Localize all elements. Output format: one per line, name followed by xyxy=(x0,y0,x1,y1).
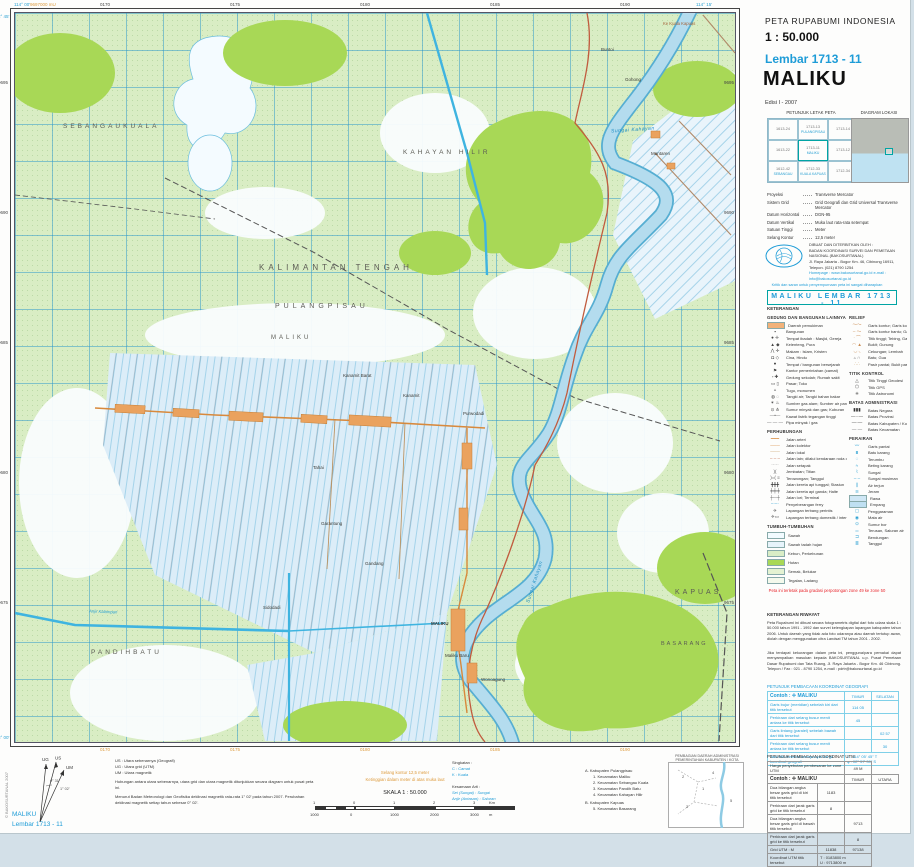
place-label: Kanamit xyxy=(403,393,420,398)
scalebar-segment xyxy=(355,806,395,810)
legend-symbol: ⬠ xyxy=(849,384,865,390)
legend-label: Jeram xyxy=(868,489,879,494)
legend-symbol: ⌇ xyxy=(849,469,865,475)
projection-label: Satuan Tinggi xyxy=(767,227,803,232)
table-row: Koordinat UTM titik tersebutT : 0183800 … xyxy=(768,854,899,867)
region-label: SEBANGAUKUALA xyxy=(63,123,159,130)
legend-symbol: ━━━ xyxy=(767,436,783,442)
legend-item: – 〜Garis kontur bantu; Garis depresi xyxy=(849,329,907,336)
legend-symbol: ⚑ xyxy=(767,368,783,374)
legend-symbol: ▪ xyxy=(767,329,783,335)
edge-coordinate: 0185 xyxy=(490,2,500,7)
edge-coordinate: 2° 45' xyxy=(0,14,9,19)
legend-label: Jalan lokal xyxy=(786,450,805,455)
legend-label: Terowongan; Tanggul xyxy=(786,476,824,481)
index-cell-number: 1613-24 xyxy=(776,127,790,132)
sheet-number: Lembar 1713 - 11 xyxy=(765,52,862,66)
abbreviations: Singkatan : C : CamatK : Kuala Kesamaan … xyxy=(452,760,496,802)
legend-label: Sumber gas alam; Sumber air panas xyxy=(786,401,847,406)
legend-label: Kebun, Perkebunan xyxy=(788,551,823,556)
legend-symbol: ◌ xyxy=(849,456,865,462)
place-label: MALIKU xyxy=(431,621,449,626)
legend-symbol: ≈ xyxy=(849,463,865,469)
place-label: Maliku Baru xyxy=(445,653,469,658)
projection-row: Sistem GridGrid Geografi dan Grid Univer… xyxy=(767,200,903,210)
legend-label: Pasar; Toko xyxy=(786,381,807,386)
coord-result-2: U : 9713800 m xyxy=(820,860,869,865)
legend-item: Kebun, Perkebunan xyxy=(767,549,847,558)
legend-item: Hutan xyxy=(767,558,847,567)
legend-symbol: ⊙ xyxy=(849,521,865,527)
legend-symbol: ≋ xyxy=(849,489,865,495)
table-cell: 8 xyxy=(845,833,872,846)
feedback-note: Kritik dan saran untuk penyempurnaan pet… xyxy=(755,283,899,287)
legend-symbol: — — xyxy=(849,427,865,433)
legend-label: Titik tinggi; Tebing, Gawir xyxy=(868,336,907,341)
place-label: Garantung xyxy=(321,521,342,526)
legend-left-column: GEDUNG DAN BANGUNAN LAINNYADaerah pemuki… xyxy=(767,312,847,585)
scalebar-segment xyxy=(395,806,435,810)
index-cell-name: SEBANGAU xyxy=(774,172,793,176)
publisher-block: DIBUAT DAN DITERBITKAN OLEH : BADAN KOOR… xyxy=(809,242,905,282)
region-label: BASARANG xyxy=(661,641,708,647)
projection-row: Datum HorizontalDGN-95 xyxy=(767,212,903,217)
projection-label: Datum Horizontal xyxy=(767,212,803,217)
map-area: SEBANGAUKUALAKAHAYAN HILIRKALIMANTAN TEN… xyxy=(14,12,736,743)
legend-title: KETERANGAN xyxy=(767,306,799,311)
table-cell: 45 xyxy=(845,714,872,727)
legend-label: Jalan kolektor xyxy=(786,443,811,448)
legend-symbol: – – xyxy=(849,476,865,482)
decl-angle2: 1° 02' xyxy=(60,787,70,791)
legend-item: △Titik Tinggi Geodesi xyxy=(849,378,907,385)
edge-coordinate: 0175 xyxy=(230,2,240,7)
table-cell: SELATAN xyxy=(872,692,899,701)
legend-label: Sawah tadah hujan xyxy=(788,542,822,547)
table-row: Contoh : ✛ MALIKUTIMURSELATAN xyxy=(768,692,899,701)
table-cell xyxy=(872,714,899,727)
legend-label: Batas Kabupaten / Kota xyxy=(868,421,907,426)
map-neatline: SEBANGAUKUALAKAHAYAN HILIRKALIMANTAN TEN… xyxy=(10,8,740,747)
road-label: Ke Kuala Kapuas xyxy=(663,21,695,26)
region-label: KAHAYAN HILIR xyxy=(403,149,491,156)
corner-sheet-id: MALIKU Lembar 1713 - 11 xyxy=(12,810,63,830)
table-row: Garis lintang (paralel) sebelah bawah da… xyxy=(768,727,899,740)
legend-label: Bendungan xyxy=(868,535,888,540)
projection-row: Satuan TinggiMeter xyxy=(767,227,903,232)
legend-label: Penggaraman xyxy=(868,509,893,514)
legend-label: Tugu, monumen xyxy=(786,388,815,393)
bakosurtanal-logo xyxy=(765,244,803,268)
scalebar-label: 2 xyxy=(433,800,435,805)
legend-symbol: ┼─┼ xyxy=(767,495,783,501)
declination-notes: US : Utara sebenarnya (Geografi) UG : Ut… xyxy=(115,758,315,806)
index-map-grid: 1613-241713-13PULANGPISAU1713-141613-221… xyxy=(767,118,859,183)
legend-label: Tangki air; Tangki bahan bakar xyxy=(786,394,840,399)
legend-symbol xyxy=(767,577,785,584)
decl-label-ug: UG xyxy=(42,757,49,762)
legend-symbol: ╋╋╋ xyxy=(767,482,783,488)
history-p1: Peta Rupabumi ini dibuat secara fotogram… xyxy=(767,620,901,642)
index-cell: 1713-13PULANGPISAU xyxy=(798,119,828,140)
legend-label: Sungai xyxy=(868,470,880,475)
legend-label: Batu; Gua xyxy=(868,355,886,360)
place-label: Buntoi xyxy=(601,47,614,52)
edge-coordinate: 9695 xyxy=(0,80,8,85)
legend-label: Jembatan; Titian xyxy=(786,469,815,474)
projection-label: Selang Kontur xyxy=(767,235,803,240)
legend-item: ⊙ ⋔Sumur minyak dan gas; Kuburan xyxy=(767,407,847,414)
dotted-leader xyxy=(803,192,812,196)
legend-section-title: TITIK KONTROL xyxy=(849,371,907,376)
legend-label: Terusan, Saluran air xyxy=(868,528,904,533)
legend-symbol: ● xyxy=(767,361,783,367)
legend-label: Tempat / bangunan bersejarah xyxy=(786,362,840,367)
legend-symbol xyxy=(767,559,785,566)
legend-item: ✶ ♨Sumber gas alam; Sumber air panas xyxy=(767,400,847,407)
legend-symbol xyxy=(849,502,867,509)
legend-label: Pipa minyak / gas xyxy=(786,420,818,425)
table-cell: TIMUR xyxy=(845,692,872,701)
table-cell: T : 0183800 mU : 9713800 m xyxy=(818,854,872,867)
edition: Edisi I - 2007 xyxy=(765,100,797,106)
legend-item: Sawah xyxy=(767,531,847,540)
legend-symbol: ⊐ xyxy=(849,534,865,540)
table-cell: Perkiraan dari jarak garis grid ke titik… xyxy=(768,833,818,846)
legend-item: —•—Kawat listrik tegangan tinggi xyxy=(767,413,847,420)
dotted-leader xyxy=(803,212,812,216)
legend-label: Kawat listrik tegangan tinggi xyxy=(786,414,836,419)
bottom-margin: UG US UM 0° 31' 1° 02' US : Utara sebena… xyxy=(0,748,910,833)
legend-label: Rawa xyxy=(870,496,880,501)
legend-section-title: TUMBUH-TUMBUHAN xyxy=(767,524,847,529)
index-cell-number: 1713-12 xyxy=(836,148,850,153)
scale-bar: 10123Km10000100020003000m xyxy=(305,800,505,820)
edge-coordinate: 9690 xyxy=(724,210,734,215)
scalebar-segment xyxy=(435,806,475,810)
index-cell: 1612-42SEBANGAU xyxy=(768,161,798,182)
projection-value: Grid Geografi dan Grid Universal Transve… xyxy=(815,200,903,210)
legend-section-title: RELIEF xyxy=(849,315,907,320)
table-cell: Grid UTM : M xyxy=(768,846,818,854)
legend-item: · ⌒Titik tinggi; Tebing, Gawir xyxy=(849,335,907,342)
legend-label: Jalan lori; Terminal xyxy=(786,495,819,500)
legend-right-column: RELIEF〜〜Garis kontur; Garis kontur indek… xyxy=(849,312,907,547)
legend-symbol: ◡ ◟ xyxy=(849,348,865,354)
legend-item: ═Terusan, Saluran air xyxy=(849,528,907,535)
index-cell-name: KUALA KAPUAS xyxy=(800,172,826,176)
legend-item: Semak, Belukar xyxy=(767,567,847,576)
legend-label: Titik GPS xyxy=(868,385,885,390)
projection-value: Meter xyxy=(815,227,903,232)
index-cell-name: PULANGPISAU xyxy=(801,130,825,134)
legend-symbol: ─── xyxy=(767,443,783,449)
legend-symbol: ✶ ♨ xyxy=(767,400,783,406)
decl-angle1: 0° 31' xyxy=(50,779,60,783)
scalebar-label: 1 xyxy=(393,800,395,805)
legend-item: ● ✛Tempat ibadah : Masjid, Gereja xyxy=(767,335,847,342)
legend-symbol: ▵ xyxy=(767,387,783,393)
legend-symbol: –·–· xyxy=(767,501,783,507)
legend-label: Makam : Islam, Kristen xyxy=(786,349,827,354)
legend-item: — — —Pipa minyak / gas xyxy=(767,420,847,427)
dotted-leader xyxy=(803,220,812,224)
decl-label-us: US xyxy=(55,756,61,761)
projection-label: Proyeksi xyxy=(767,192,803,197)
legend-item: ≣Tanggul xyxy=(849,541,907,548)
scalebar-segment xyxy=(475,806,515,810)
legend-symbol: ═ xyxy=(849,528,865,534)
legend-label: Jalan kereta api tunggal; Stasiun xyxy=(786,482,844,487)
scalebar-label: 3000 xyxy=(470,812,479,817)
legend-symbol: ─── xyxy=(767,449,783,455)
legend-symbol: ⋀ ✛ xyxy=(767,348,783,354)
equiv-item: Anjir (Antasan) : Saluran xyxy=(452,796,496,802)
legend-label: Kelenteng, Pura xyxy=(786,342,815,347)
canal-label: Anjir Kalampan xyxy=(89,609,118,615)
legend-item: Tegalan, Ladang xyxy=(767,576,847,585)
legend-symbol: ✈ xyxy=(767,508,783,514)
dotted-leader xyxy=(803,227,812,231)
legend-symbol: ◍ ◌ xyxy=(767,394,783,400)
legend-symbol: ◉ xyxy=(849,515,865,521)
legend-item: ◍ ◌Tangki air; Tangki bahan bakar xyxy=(767,394,847,401)
legend-item: ▫ ✚Gedung sekolah; Rumah sakit xyxy=(767,374,847,381)
scalebar-label: 0 xyxy=(350,812,352,817)
scalebar-unit: m xyxy=(489,812,492,817)
projection-value: 12,5 meter xyxy=(815,235,903,240)
legend-item: ✈▭Lapangan terbang domestik / internasio… xyxy=(767,514,847,521)
legend-label: Jalan arteri xyxy=(786,437,806,442)
legend-item: — —Batas Kecamatan xyxy=(849,427,907,434)
legend-label: Sungai musiman xyxy=(868,476,898,481)
region-label: KAPUAS xyxy=(675,589,721,596)
edge-coordinate: 114° 15' xyxy=(696,2,712,7)
region-label: KALIMANTAN TENGAH xyxy=(259,263,413,272)
legend-label: Lapangan terbang perintis xyxy=(786,508,832,513)
scalebar-label: 0 xyxy=(353,800,355,805)
legend-label: Titik Astronomi xyxy=(868,391,894,396)
legend-label: Penyeberangan ferry xyxy=(786,502,823,507)
corner-sheet: Lembar 1713 - 11 xyxy=(12,820,63,830)
legend-symbol: ✈▭ xyxy=(767,514,783,520)
projection-row: Selang Kontur12,5 meter xyxy=(767,235,903,240)
legend-label: Terumbu xyxy=(868,457,884,462)
legend-label: Tempat ibadah : Masjid, Gereja xyxy=(786,336,841,341)
legend-item: ⚑Kantor pemerintahan (camat) xyxy=(767,368,847,375)
index-cell-number: 1712-34 xyxy=(836,169,850,174)
legend-label: Bangunan xyxy=(786,329,804,334)
legend-symbol: ◠ ▲ xyxy=(849,342,865,348)
legend-label: Batas Negara xyxy=(868,408,892,413)
region-label: PULANGPISAU xyxy=(275,303,369,310)
legend-label: Batas Provinsi xyxy=(868,414,894,419)
table-cell: 114 05 xyxy=(845,701,872,714)
legend-label: Semak, Belukar xyxy=(788,569,816,574)
legend-symbol: ● ✛ xyxy=(767,335,783,341)
scalebar-segment xyxy=(315,806,355,810)
legend-section-title: BATAS ADMINISTRASI xyxy=(849,400,907,405)
table-cell: Garis bujur (meridian) sebelah kiri dari… xyxy=(768,701,845,714)
region-label: MALIKU xyxy=(271,335,311,341)
table-cell xyxy=(818,833,845,846)
legend-symbol: )=( ≡ xyxy=(767,475,783,481)
legend-symbol xyxy=(767,541,785,548)
location-diagram xyxy=(851,118,909,183)
place-label: Gohong xyxy=(625,77,641,82)
legend-label: Titik Tinggi Geodesi xyxy=(868,378,903,383)
legend-symbol: ····· xyxy=(767,462,783,468)
copyright-note: © BAKOSURTANAL 2007 xyxy=(4,772,9,818)
legend-item: —·—Batas Kabupaten / Kota xyxy=(849,420,907,427)
legend-symbol: · ⌒ xyxy=(849,335,865,341)
legend-symbol: —•— xyxy=(767,413,783,419)
legend-item: ✳Titik Astronomi xyxy=(849,391,907,398)
legend-symbol: Ω ◇ xyxy=(767,355,783,361)
sheet-banner: MALIKU LEMBAR 1713 - 11 xyxy=(767,290,897,305)
place-label: Wonoagung xyxy=(481,677,505,682)
edge-coordinate: 114° 00' xyxy=(14,2,30,7)
legend-symbol: ❙ xyxy=(849,482,865,488)
history-p2: Jika terdapat kekurangan dalam peta ini,… xyxy=(767,650,901,672)
inset-title: PEMBAGIAN DAERAH ADMINISTRASI PEMERINTAH… xyxy=(652,754,762,762)
legend-symbol: ▲ ◆ xyxy=(767,342,783,348)
decl-label-um: UM xyxy=(66,765,73,770)
agency-title: PETA RUPABUMI INDONESIA xyxy=(765,16,896,26)
legend-label: Daerah pemukiman xyxy=(788,323,823,328)
legend-label: Empang xyxy=(870,502,885,507)
table-row: Garis bujur (meridian) sebelah kiri dari… xyxy=(768,701,899,714)
zone-note: Peta ini terletak pada gradasi perpotong… xyxy=(757,588,897,593)
legend-label: Jalan setapak xyxy=(786,463,811,468)
edge-coordinate: 9680 xyxy=(724,470,734,475)
history-title: KETERANGAN RIWAYAT xyxy=(767,612,820,617)
publisher-web: Homepage : www.bakosurtanal.go.id e-mail… xyxy=(809,270,905,281)
legend-symbol: – – – xyxy=(767,456,783,462)
legend-symbol: ⩩ xyxy=(849,450,865,456)
legend-label: Lapangan terbang domestik / internasiona… xyxy=(786,515,847,520)
legend-symbol: ▫ ✚ xyxy=(767,374,783,380)
sheet-title: MALIKU xyxy=(763,68,847,91)
legend-label: Air terjun xyxy=(868,483,884,488)
legend-item: Sawah tadah hujan xyxy=(767,540,847,549)
scalebar-label: 2000 xyxy=(430,812,439,817)
legend-symbol: – 〜 xyxy=(849,329,865,335)
projection-info: ProyeksiTransverse MercatorSistem GridGr… xyxy=(767,192,903,243)
legend-label: Hutan xyxy=(788,560,799,565)
legend-label: Jalan kereta api ganda; Halte xyxy=(786,489,838,494)
legend-symbol: ✳ xyxy=(849,391,865,397)
legend-label: Garis kontur; Garis kontur indeks xyxy=(868,323,907,328)
edge-coordinate: 9685 xyxy=(0,340,8,345)
legend-symbol: —··— xyxy=(849,414,865,420)
place-label: Tahai xyxy=(313,465,324,470)
edge-coordinate: 9675 xyxy=(724,600,734,605)
projection-row: ProyeksiTransverse Mercator xyxy=(767,192,903,197)
legend-symbol xyxy=(767,532,785,539)
legend-label: Bukit; Gunung xyxy=(868,342,893,347)
legend-label: Tanggul xyxy=(868,541,882,546)
abbrev-item: K : Kuala xyxy=(452,772,496,778)
table-cell: 02 57 xyxy=(872,727,899,740)
edge-coordinate: 9675 xyxy=(0,600,8,605)
index-cell-number: 1613-22 xyxy=(776,148,790,153)
admin-inset-map: 2 1 3 4 5 xyxy=(668,762,744,828)
legend-section-title: GEDUNG DAN BANGUNAN LAINNYA xyxy=(767,315,847,320)
scalebar-label: 1 xyxy=(313,800,315,805)
legend-section-title: PERAIRAN xyxy=(849,436,907,441)
index-cell: 1712-33KUALA KAPUAS xyxy=(798,161,828,182)
legend-symbol: ╪╪╪ xyxy=(767,488,783,494)
map-labels-layer: SEBANGAUKUALAKAHAYAN HILIRKALIMANTAN TEN… xyxy=(15,13,735,742)
place-label: Gandang xyxy=(365,561,384,566)
scalebar-label: 1000 xyxy=(390,812,399,817)
dotted-leader xyxy=(803,200,812,204)
location-diagram-title: DIAGRAM LOKASI xyxy=(851,110,907,115)
table-cell: Garis lintang (paralel) sebelah bawah da… xyxy=(768,727,845,740)
abbrev-items: C : CamatK : Kuala xyxy=(452,766,496,778)
legend-symbol: ∴∴ xyxy=(849,361,865,367)
legend-label: Sumur minyak dan gas; Kuburan xyxy=(786,407,844,412)
edge-coordinate: 3° 00' xyxy=(0,735,9,740)
corner-name: MALIKU xyxy=(12,810,63,820)
equiv-items: Sei (Sungai) : SungaiAnjir (Antasan) : S… xyxy=(452,790,496,802)
legend-symbol: )( xyxy=(767,469,783,475)
legend-symbol: ⊙ ⋔ xyxy=(767,407,783,413)
legend-label: Jalan lain; dilalui kendaraan roda dua xyxy=(786,456,847,461)
legend-symbol xyxy=(767,568,785,575)
table-row: Perkiraan dari jarak garis grid ke titik… xyxy=(768,833,899,846)
map-sheet: SEBANGAUKUALAKAHAYAN HILIRKALIMANTAN TEN… xyxy=(0,0,911,834)
legend-symbol: — — — xyxy=(767,420,783,426)
publisher-address: Jl. Raya Jakarta - Bogor Km. 46, Cibinon… xyxy=(809,259,905,270)
legend-symbol: —·— xyxy=(849,420,865,426)
edge-coordinate: 0170 xyxy=(100,2,110,7)
decl-p2: Menurut Badan Meteorologi dan Geofisika … xyxy=(115,794,315,806)
index-cell: 1613-24 xyxy=(768,119,798,140)
legend-label: Garis pantai xyxy=(868,444,890,449)
legend-symbol: ▭ ▯ xyxy=(767,381,783,387)
projection-label: Datum Vertikal xyxy=(767,220,803,225)
edge-coordinate: 9680 xyxy=(0,470,8,475)
legend-item: ●Tempat / bangunan bersejarah xyxy=(767,361,847,368)
edge-coordinate: 9697000 mU xyxy=(30,2,56,7)
legend-symbol: △ xyxy=(849,378,865,384)
projection-value: Transverse Mercator xyxy=(815,192,903,197)
index-cell: 1613-22 xyxy=(768,140,798,161)
legend-label: Garis kontur bantu; Garis depresi xyxy=(868,329,907,334)
projection-value: DGN-95 xyxy=(815,212,903,217)
legend-symbol xyxy=(767,550,785,557)
legend-item: ∴∴Pasir pantai; Bukit pasir xyxy=(849,361,907,368)
projection-row: Datum VertikalMuka laut rata-rata setemp… xyxy=(767,220,903,225)
scalebar-label: 1000 xyxy=(310,812,319,817)
legend-item: 〜〜Garis kontur; Garis kontur indeks xyxy=(849,322,907,329)
decl-um-line: UM : Utara magnetik xyxy=(115,770,315,776)
legend-symbol xyxy=(767,322,785,329)
place-label: Sidodadi xyxy=(263,605,281,610)
legend-symbol: ≣ xyxy=(849,541,865,547)
table-cell xyxy=(845,727,872,740)
edge-coordinate: 0180 xyxy=(360,2,370,7)
dotted-leader xyxy=(803,235,812,239)
legend-label: Mata air xyxy=(868,515,882,520)
geo-table-title: PETUNJUK PEMBACAAN KOORDINAT GEOGRAFI xyxy=(767,684,899,689)
index-cell: 1713-11MALIKU xyxy=(798,140,828,161)
legend-label: Gedung sekolah; Rumah sakit xyxy=(786,375,840,380)
publisher-name: BADAN KOORDINASI SURVEI DAN PEMETAAN NAS… xyxy=(809,248,905,259)
table-row: Grid UTM : M1183897138 xyxy=(768,846,899,854)
